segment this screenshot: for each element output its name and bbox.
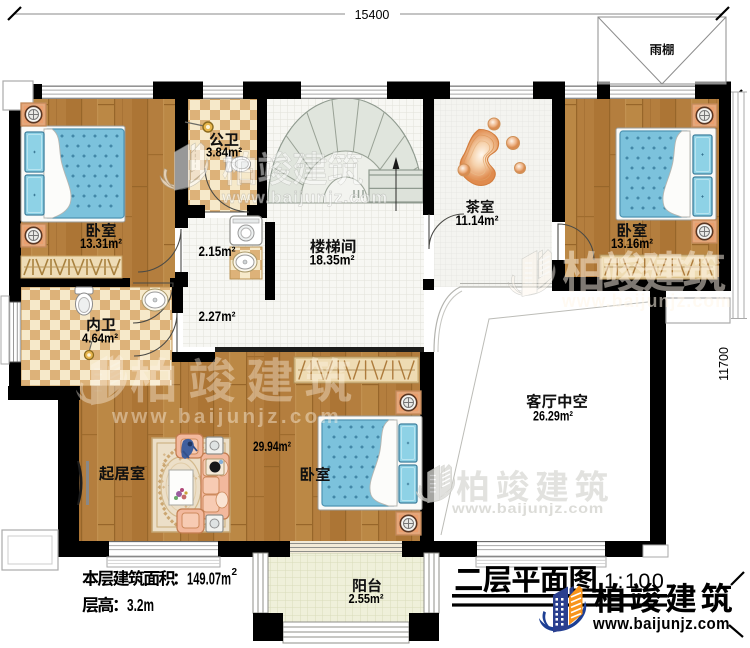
svg-text:4.64m²: 4.64m² <box>82 331 119 346</box>
svg-text:www.baijunjz.com: www.baijunjz.com <box>221 189 388 207</box>
svg-text:13.16m²: 13.16m² <box>611 235 653 251</box>
svg-text:26.29m²: 26.29m² <box>533 409 573 424</box>
svg-text:2: 2 <box>232 567 238 578</box>
svg-text:www.baijunjz.com: www.baijunjz.com <box>561 291 732 311</box>
svg-text:www.baijunjz.com: www.baijunjz.com <box>111 406 342 428</box>
svg-text:2.27m²: 2.27m² <box>199 309 236 324</box>
svg-text:www.baijunjz.com: www.baijunjz.com <box>451 500 604 516</box>
svg-text:11.14m²: 11.14m² <box>456 213 499 228</box>
svg-text:3.2m: 3.2m <box>127 595 154 615</box>
svg-text:13.31m²: 13.31m² <box>80 235 122 251</box>
svg-text:www.baijunjz.com: www.baijunjz.com <box>592 615 730 633</box>
svg-text:2.15m²: 2.15m² <box>199 244 236 259</box>
svg-text:15400: 15400 <box>355 8 390 22</box>
svg-text:11700: 11700 <box>717 347 731 381</box>
svg-text:3.84m²: 3.84m² <box>206 145 243 160</box>
svg-text:18.35m²: 18.35m² <box>310 252 355 268</box>
svg-text:2.55m²: 2.55m² <box>349 592 384 606</box>
svg-text:29.94m²: 29.94m² <box>253 439 291 454</box>
svg-text:149.07m: 149.07m <box>187 569 231 589</box>
